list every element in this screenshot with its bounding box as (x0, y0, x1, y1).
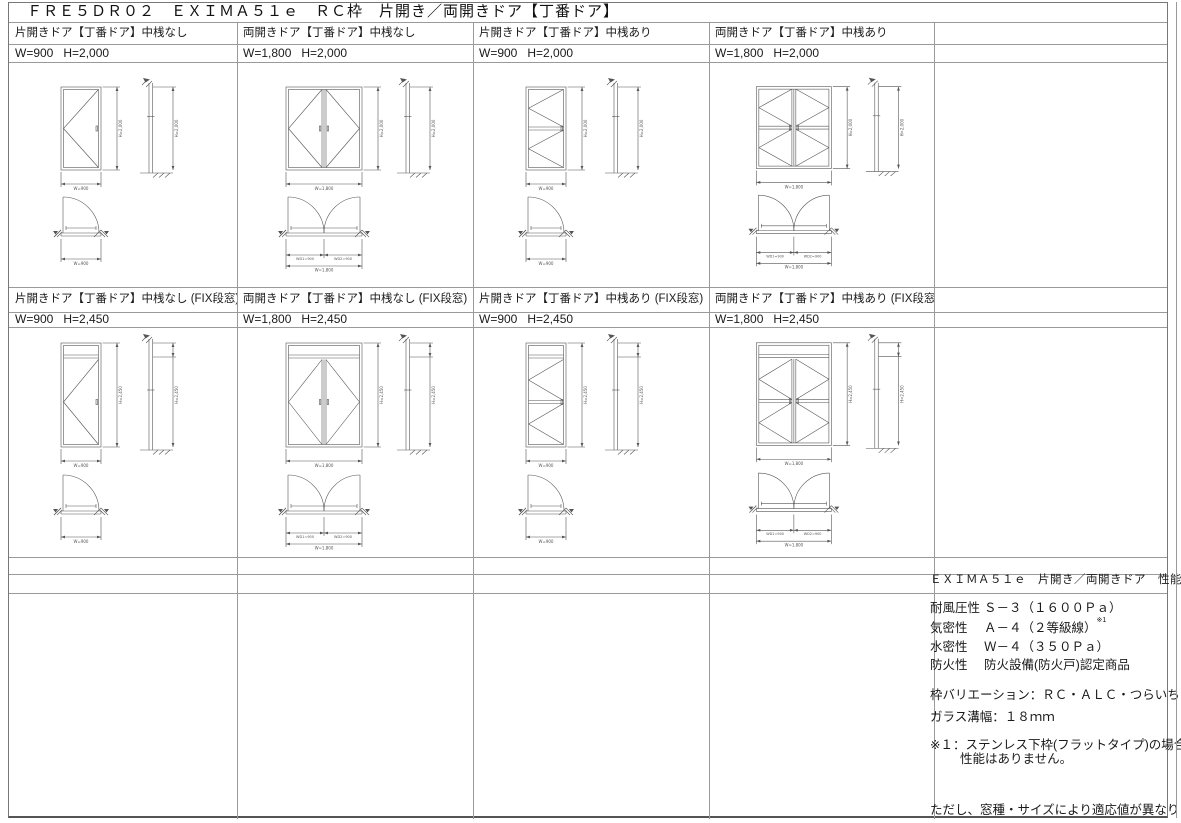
cell-size: W=1,800 H=2,000 (709, 44, 934, 62)
svg-text:H=2,450: H=2,450 (583, 386, 588, 404)
drawing-double-door-mid-rail-fix: H=2,450W=1,800H=2,450WD1=900WD2=900W=1,8… (709, 327, 934, 557)
svg-text:W=900: W=900 (74, 539, 89, 544)
cell-caption: 片開きドア【丁番ドア】中桟あり (FIX段窓) (473, 287, 709, 312)
svg-text:W=1,800: W=1,800 (315, 546, 334, 551)
spec-label: 耐風圧性 (930, 597, 984, 616)
page-title: ＦＲＥ５ＤＲ０２ ＥＸＩＭＡ５１ｅ ＲＣ枠 片開き／両開きドア【丁番ドア】 (9, 3, 1167, 22)
spec-glass-groove: ガラス溝幅：１８ｍｍ (930, 706, 1055, 725)
drawing-double-door-no-rail: H=2,000W=1,800H=2,000WD1=900WD2=900W=1,8… (237, 62, 473, 287)
drawing-single-door-mid-rail-fix: H=2,450W=900H=2,450W=900 (473, 327, 709, 557)
spec-note1-line2: 性能はありません。 (960, 748, 1072, 767)
cell-size: W=900 H=2,000 (9, 44, 237, 62)
svg-text:W=900: W=900 (539, 463, 554, 468)
svg-text:H=2,000: H=2,000 (431, 119, 436, 137)
spec-sup: ※1 (1097, 617, 1107, 636)
svg-text:H=2,450: H=2,450 (639, 386, 644, 404)
cell-caption: 両開きドア【丁番ドア】中桟あり (709, 22, 934, 44)
cell-size: W=900 H=2,000 (473, 44, 709, 62)
spec-row-fire: 防火性 防火設備(防火戸)認定商品 (930, 654, 1130, 673)
cell-size: W=900 H=2,450 (9, 312, 237, 327)
drawing-single-door-mid-rail: H=2,000W=900H=2,000W=900 (473, 62, 709, 287)
svg-text:W=900: W=900 (74, 186, 89, 191)
cell-caption: 両開きドア【丁番ドア】中桟なし (237, 22, 473, 44)
spec-row-wind: 耐風圧性 Ｓ－３（１６００Ｐａ） (930, 597, 1122, 616)
svg-text:WD1=900: WD1=900 (766, 532, 784, 536)
drawing-single-door-no-rail: H=2,000W=900H=2,000W=900 (9, 62, 237, 287)
svg-text:WD2=900: WD2=900 (804, 532, 822, 536)
table-border-line (9, 557, 1167, 558)
page-edge-line (1176, 2, 1177, 818)
spec-label: 防火性 (930, 654, 984, 673)
drawing-double-door-mid-rail: H=2,000W=1,800H=2,000WD1=900WD2=900W=1,8… (709, 62, 934, 287)
svg-text:H=2,000: H=2,000 (899, 118, 904, 136)
cell-size: W=1,800 H=2,000 (237, 44, 473, 62)
svg-text:W=900: W=900 (74, 261, 89, 266)
svg-text:H=2,450: H=2,450 (379, 386, 384, 404)
svg-text:W=1,800: W=1,800 (315, 186, 334, 191)
svg-text:H=2,000: H=2,000 (379, 119, 384, 137)
svg-text:H=2,450: H=2,450 (431, 386, 436, 404)
svg-text:WD1=900: WD1=900 (766, 254, 784, 258)
spec-value: 防火設備(防火戸)認定商品 (984, 654, 1130, 673)
cell-size: W=900 H=2,450 (473, 312, 709, 327)
svg-text:H=2,000: H=2,000 (583, 119, 588, 137)
spec-value: Ｗ－４（３５０Ｐａ） (984, 636, 1109, 655)
svg-text:WD1=900: WD1=900 (296, 535, 314, 539)
spec-row-air: 気密性 Ａ－４（２等級線） ※1 (930, 617, 1106, 636)
cell-size: W=1,800 H=2,450 (709, 312, 934, 327)
spec-label: 水密性 (930, 636, 984, 655)
spec-value: Ａ－４（２等級線） (984, 617, 1097, 636)
drawing-double-door-no-rail-fix: H=2,450W=1,800H=2,450WD1=900WD2=900W=1,8… (237, 327, 473, 557)
spec-value: Ｓ－３（１６００Ｐａ） (984, 597, 1122, 616)
svg-text:H=2,000: H=2,000 (174, 119, 179, 137)
spec-row-water: 水密性 Ｗ－４（３５０Ｐａ） (930, 636, 1109, 655)
svg-text:WD2=900: WD2=900 (334, 257, 352, 261)
spec-panel-title: ＥＸＩＭＡ５１ｅ 片開き／両開きドア 性能等級 (930, 571, 1181, 590)
svg-text:W=1,800: W=1,800 (785, 184, 804, 189)
svg-text:W=1,800: W=1,800 (785, 461, 804, 466)
svg-text:W=900: W=900 (539, 539, 554, 544)
svg-text:WD2=900: WD2=900 (804, 254, 822, 258)
cell-caption: 両開きドア【丁番ドア】中桟あり (FIX段窓) (709, 287, 934, 312)
svg-text:H=2,000: H=2,000 (118, 119, 123, 137)
svg-text:W=1,800: W=1,800 (315, 463, 334, 468)
svg-text:H=2,000: H=2,000 (639, 119, 644, 137)
cell-caption: 片開きドア【丁番ドア】中桟なし (9, 22, 237, 44)
svg-text:H=2,450: H=2,450 (118, 386, 123, 404)
svg-text:H=2,450: H=2,450 (848, 385, 853, 403)
svg-text:W=1,800: W=1,800 (785, 543, 804, 548)
svg-text:W=900: W=900 (539, 261, 554, 266)
svg-text:W=1,800: W=1,800 (315, 268, 334, 273)
cell-caption: 両開きドア【丁番ドア】中桟なし (FIX段窓) (237, 287, 473, 312)
cell-size: W=1,800 H=2,450 (237, 312, 473, 327)
spec-panel: 耐風圧性 Ｓ－３（１６００Ｐａ） 気密性 Ａ－４（２等級線） ※1 水密性 Ｗ－… (930, 590, 1176, 816)
spec-frame-variation: 枠バリエーション：ＲＣ・ＡＬＣ・つらいち (930, 684, 1180, 703)
svg-text:W=900: W=900 (74, 463, 89, 468)
svg-text:W=900: W=900 (539, 186, 554, 191)
svg-text:WD2=900: WD2=900 (334, 535, 352, 539)
drawing-single-door-no-rail-fix: H=2,450W=900H=2,450W=900 (9, 327, 237, 557)
svg-text:W=1,800: W=1,800 (785, 265, 804, 270)
spec-label: 気密性 (930, 617, 984, 636)
svg-text:H=2,000: H=2,000 (848, 118, 853, 136)
svg-text:H=2,450: H=2,450 (899, 385, 904, 403)
spec-footnote: ただし、窓種・サイズにより適応値が異なります。 (930, 799, 1181, 818)
svg-text:WD1=900: WD1=900 (296, 257, 314, 261)
catalog-page: ＦＲＥ５ＤＲ０２ ＥＸＩＭＡ５１ｅ ＲＣ枠 片開き／両開きドア【丁番ドア】 片開… (0, 0, 1181, 823)
cell-caption: 片開きドア【丁番ドア】中桟なし (FIX段窓) (9, 287, 237, 312)
svg-text:H=2,450: H=2,450 (174, 386, 179, 404)
cell-caption: 片開きドア【丁番ドア】中桟あり (473, 22, 709, 44)
